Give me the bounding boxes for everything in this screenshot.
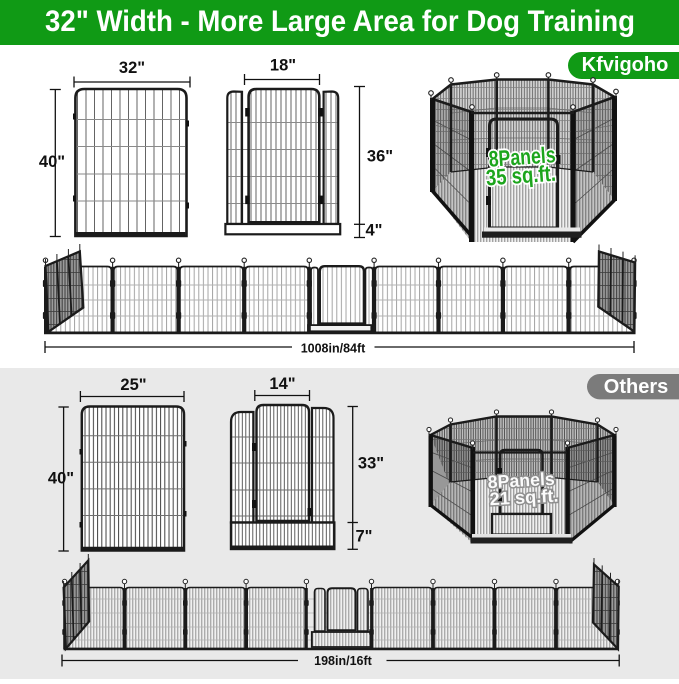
svg-text:Others: Others — [604, 376, 668, 398]
svg-text:36": 36" — [367, 148, 393, 166]
svg-text:40": 40" — [48, 470, 74, 488]
svg-text:7": 7" — [356, 528, 373, 546]
svg-text:21 sq.ft.: 21 sq.ft. — [489, 486, 559, 510]
svg-text:18": 18" — [270, 57, 296, 75]
svg-text:198in/16ft: 198in/16ft — [314, 654, 373, 668]
svg-text:33": 33" — [358, 455, 384, 473]
svg-text:4": 4" — [366, 222, 383, 240]
svg-text:14": 14" — [269, 375, 295, 393]
svg-text:32": 32" — [119, 59, 145, 77]
svg-text:35 sq.ft.: 35 sq.ft. — [485, 161, 557, 191]
svg-text:32" Width - More Large Area fo: 32" Width - More Large Area for Dog Trai… — [45, 5, 635, 38]
svg-text:Kfvigoho: Kfvigoho — [582, 54, 669, 76]
svg-text:40": 40" — [39, 153, 65, 171]
svg-text:25": 25" — [120, 376, 146, 394]
svg-text:1008in/84ft: 1008in/84ft — [301, 341, 366, 355]
